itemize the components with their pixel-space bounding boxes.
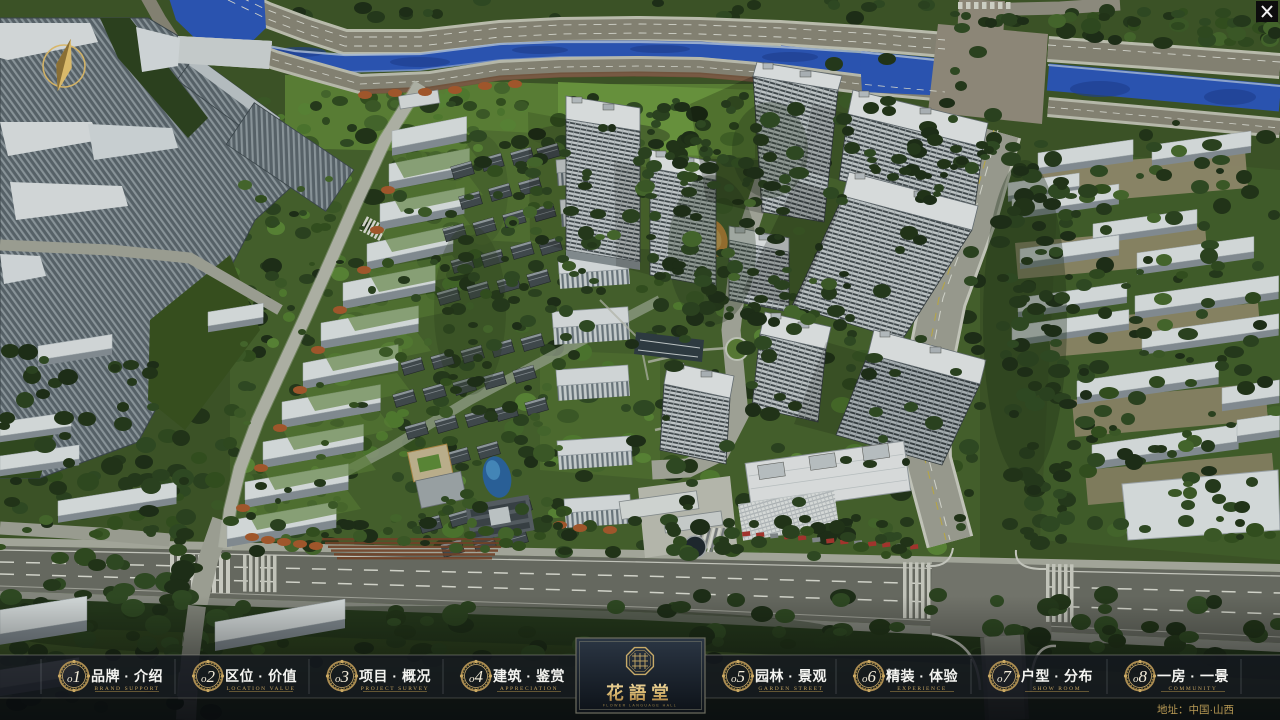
svg-text:EXPERIENCE: EXPERIENCE [897, 686, 947, 692]
svg-text:BRAND SUPPORT: BRAND SUPPORT [94, 686, 159, 692]
svg-text:FLOWER LANGUAGE HALL: FLOWER LANGUAGE HALL [603, 704, 677, 708]
svg-text:区位 · 价值: 区位 · 价值 [225, 668, 297, 684]
svg-text:LOCATION VALUE: LOCATION VALUE [226, 686, 295, 692]
svg-text:APPRECIATION: APPRECIATION [500, 686, 558, 692]
svg-text:户型 · 分布: 户型 · 分布 [1021, 668, 1093, 684]
svg-text:GARDEN STREET: GARDEN STREET [758, 686, 823, 692]
svg-text:精装 · 体验: 精装 · 体验 [886, 668, 958, 684]
svg-text:地址：中国·山西: 地址：中国·山西 [1157, 703, 1234, 716]
svg-text:COMMUNITY: COMMUNITY [1169, 686, 1218, 692]
svg-text:SHOW ROOM: SHOW ROOM [1033, 686, 1081, 692]
svg-text:建筑 · 鉴赏: 建筑 · 鉴赏 [493, 668, 565, 684]
svg-text:品牌 · 介绍: 品牌 · 介绍 [91, 668, 163, 684]
svg-text:花語堂: 花語堂 [606, 683, 674, 703]
svg-text:项目 · 概况: 项目 · 概况 [359, 668, 431, 684]
svg-text:园林 · 景观: 园林 · 景观 [755, 668, 827, 684]
svg-text:PROJECT SURVEY: PROJECT SURVEY [361, 686, 429, 692]
svg-text:一房 · 一景: 一房 · 一景 [1157, 668, 1229, 684]
